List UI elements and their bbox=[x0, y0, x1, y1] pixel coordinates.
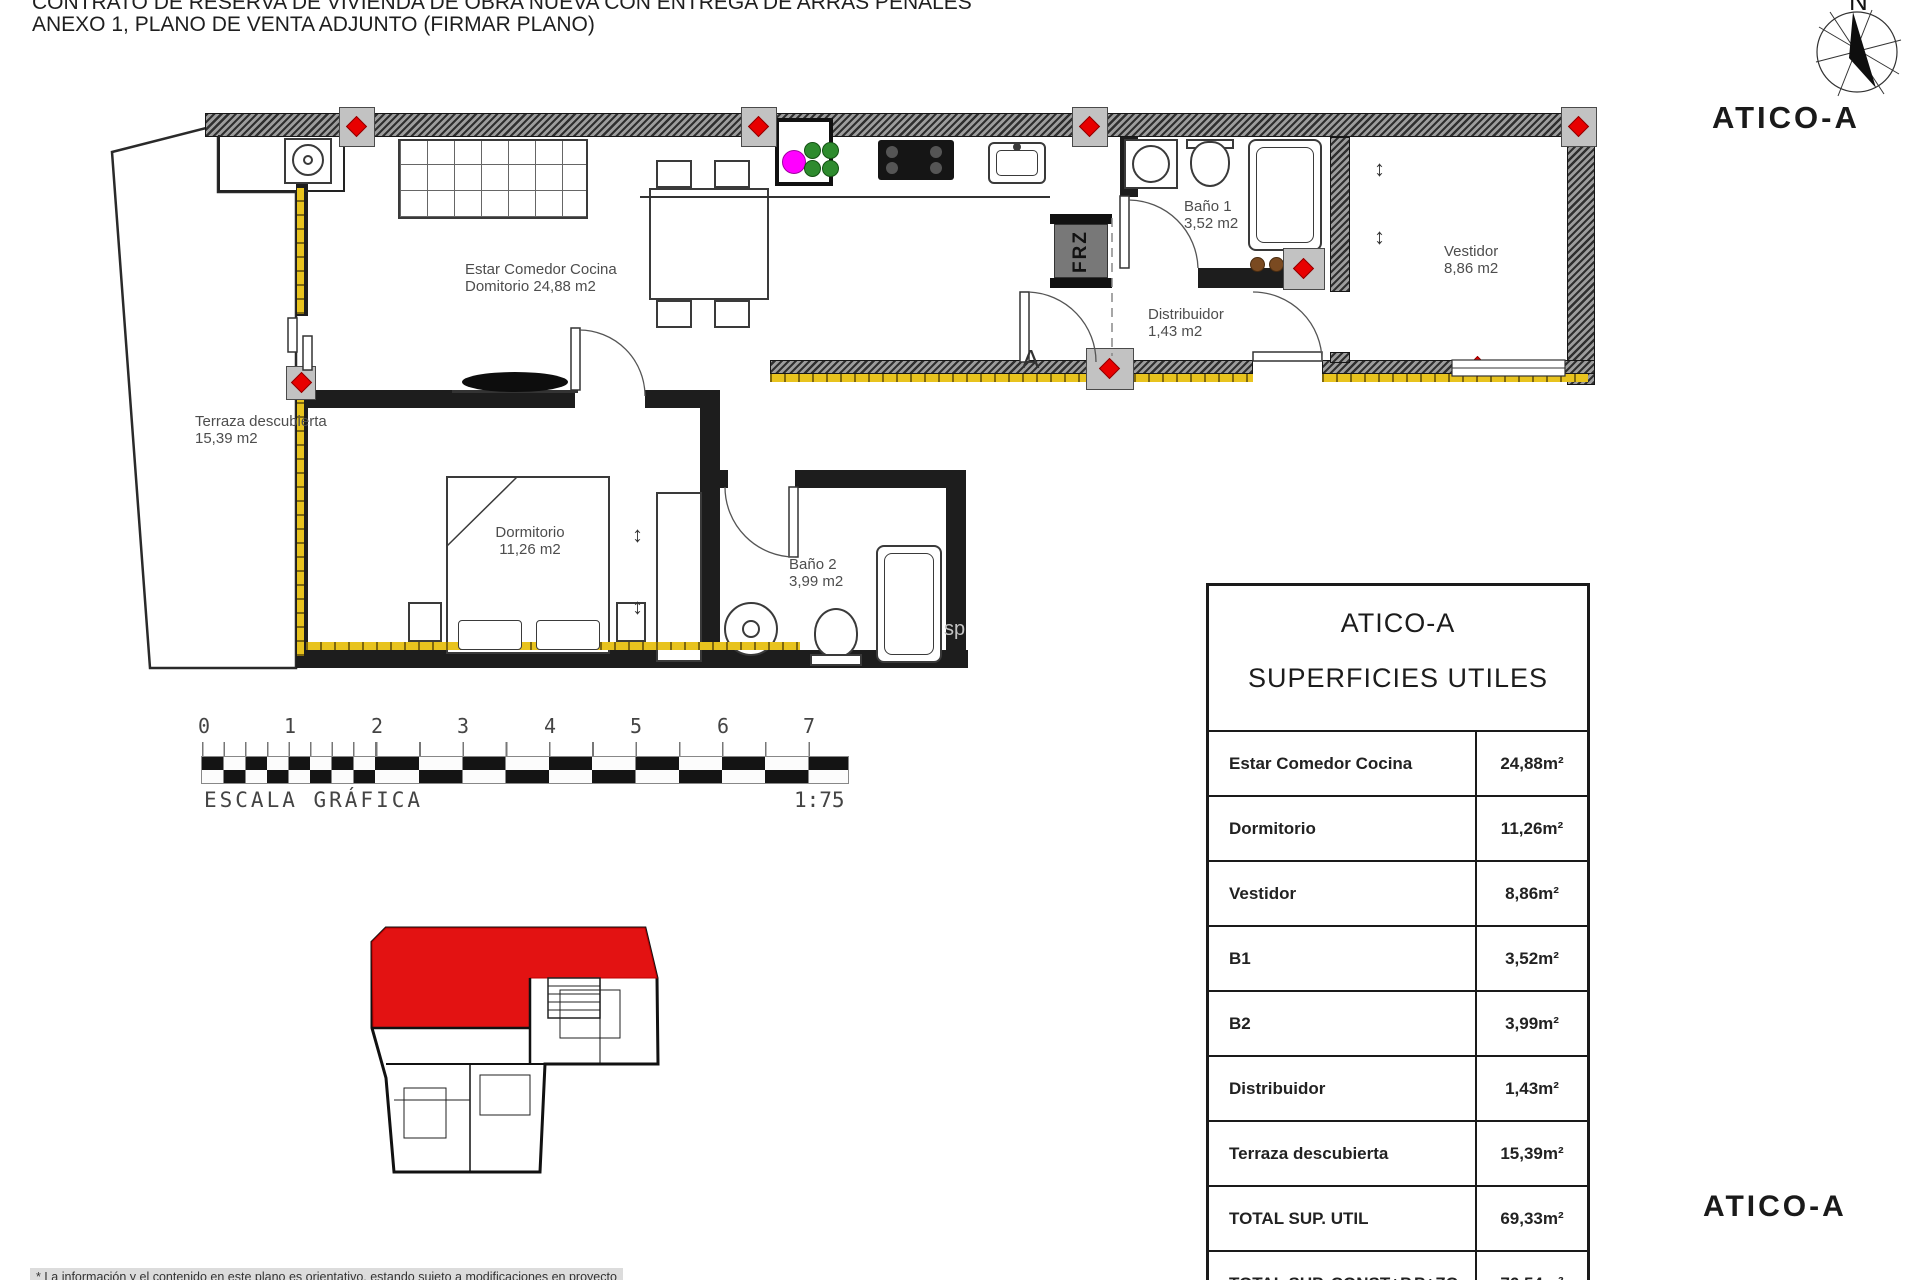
nightstand bbox=[408, 602, 442, 642]
wall-top bbox=[205, 113, 1595, 137]
kitchen-sink-basin bbox=[996, 150, 1038, 176]
frz-cap-top bbox=[1050, 214, 1112, 224]
sliding-door-arrow-icon: ↕ bbox=[632, 594, 643, 620]
wall-vestidor-left-stub bbox=[1330, 352, 1350, 363]
wall-south-right bbox=[1322, 360, 1595, 374]
room-label-distribuidor: Distribuidor 1,43 m2 bbox=[1148, 306, 1224, 340]
pillow bbox=[458, 620, 522, 650]
wall-vestidor-left bbox=[1330, 137, 1350, 292]
towel-hook bbox=[1269, 257, 1284, 272]
room-label-bano2: Baño 2 3,99 m2 bbox=[789, 556, 843, 590]
towel-hook bbox=[1250, 257, 1265, 272]
frz-label: FRZ bbox=[1070, 230, 1092, 273]
section-mark-label: A bbox=[1022, 344, 1039, 375]
wardrobe bbox=[656, 492, 702, 662]
dining-table bbox=[649, 188, 769, 300]
toilet-tank-bano2 bbox=[810, 654, 862, 666]
room-area: 1,43 m2 bbox=[1148, 323, 1224, 340]
tv bbox=[462, 372, 568, 392]
burner bbox=[886, 146, 898, 158]
riser-green bbox=[822, 160, 839, 177]
room-label-bano1: Baño 1 3,52 m2 bbox=[1184, 198, 1238, 232]
sink-drain bbox=[742, 620, 760, 638]
room-name: Terraza descubierta bbox=[195, 413, 327, 430]
room-area: Domitorio 24,88 m2 bbox=[465, 278, 617, 295]
burner bbox=[930, 146, 942, 158]
sliding-door-arrow-icon: ↕ bbox=[632, 522, 643, 548]
insulation-strip bbox=[770, 374, 1253, 382]
burner bbox=[930, 162, 942, 174]
room-label-estar: Estar Comedor Cocina Domitorio 24,88 m2 bbox=[465, 261, 617, 295]
bathtub-inner bbox=[884, 553, 934, 655]
riser-green bbox=[804, 160, 821, 177]
room-name: Baño 1 bbox=[1184, 198, 1238, 215]
wall-bottom bbox=[296, 650, 968, 668]
room-name: Vestidor bbox=[1444, 243, 1498, 260]
sink-bano1-basin bbox=[1132, 145, 1170, 183]
washing-machine-door bbox=[303, 155, 313, 165]
sliding-door-arrow-icon: ↕ bbox=[1374, 156, 1385, 182]
faucet bbox=[1013, 143, 1021, 151]
wall-bano2-top bbox=[795, 470, 946, 488]
terraza-outline bbox=[112, 125, 296, 668]
bathtub-inner bbox=[1256, 147, 1314, 243]
key-plan bbox=[372, 928, 658, 1172]
room-label-vestidor: Vestidor 8,86 m2 bbox=[1444, 243, 1498, 277]
room-label-terraza: Terraza descubierta 15,39 m2 bbox=[195, 413, 327, 447]
room-area: 8,86 m2 bbox=[1444, 260, 1498, 277]
sofa bbox=[398, 139, 588, 219]
sliding-door-arrow-icon: ↕ bbox=[1374, 224, 1385, 250]
toilet-bano2 bbox=[814, 608, 858, 658]
room-name: Dormitorio bbox=[480, 524, 580, 541]
room-name: Distribuidor bbox=[1148, 306, 1224, 323]
chair bbox=[656, 300, 692, 328]
room-area: 15,39 m2 bbox=[195, 430, 327, 447]
watermark: sp bbox=[944, 618, 965, 641]
wall-right bbox=[1567, 113, 1595, 385]
riser-magenta bbox=[782, 150, 806, 174]
toilet-bano1 bbox=[1190, 141, 1230, 187]
room-name: Estar Comedor Cocina bbox=[465, 261, 617, 278]
room-label-dormitorio: Dormitorio 11,26 m2 bbox=[480, 524, 580, 558]
room-name: Baño 2 bbox=[789, 556, 843, 573]
room-area: 11,26 m2 bbox=[480, 541, 580, 558]
frz-cap-bottom bbox=[1050, 278, 1112, 288]
insulation-strip bbox=[297, 188, 304, 314]
room-area: 3,52 m2 bbox=[1184, 215, 1238, 232]
room-area: 3,99 m2 bbox=[789, 573, 843, 590]
riser-green bbox=[822, 142, 839, 159]
plan-sheet: CONTRATO DE RESERVA DE VIVIENDA DE OBRA … bbox=[0, 0, 1920, 1280]
pillow bbox=[536, 620, 600, 650]
riser-green bbox=[804, 142, 821, 159]
freezer-column: FRZ bbox=[1054, 224, 1108, 278]
chair bbox=[714, 300, 750, 328]
wall-bano2-top-stub bbox=[720, 470, 728, 488]
wall-south-left bbox=[770, 360, 1253, 374]
insulation-strip bbox=[1322, 374, 1588, 382]
burner bbox=[886, 162, 898, 174]
wall-dormitorio-bano2 bbox=[700, 390, 720, 668]
